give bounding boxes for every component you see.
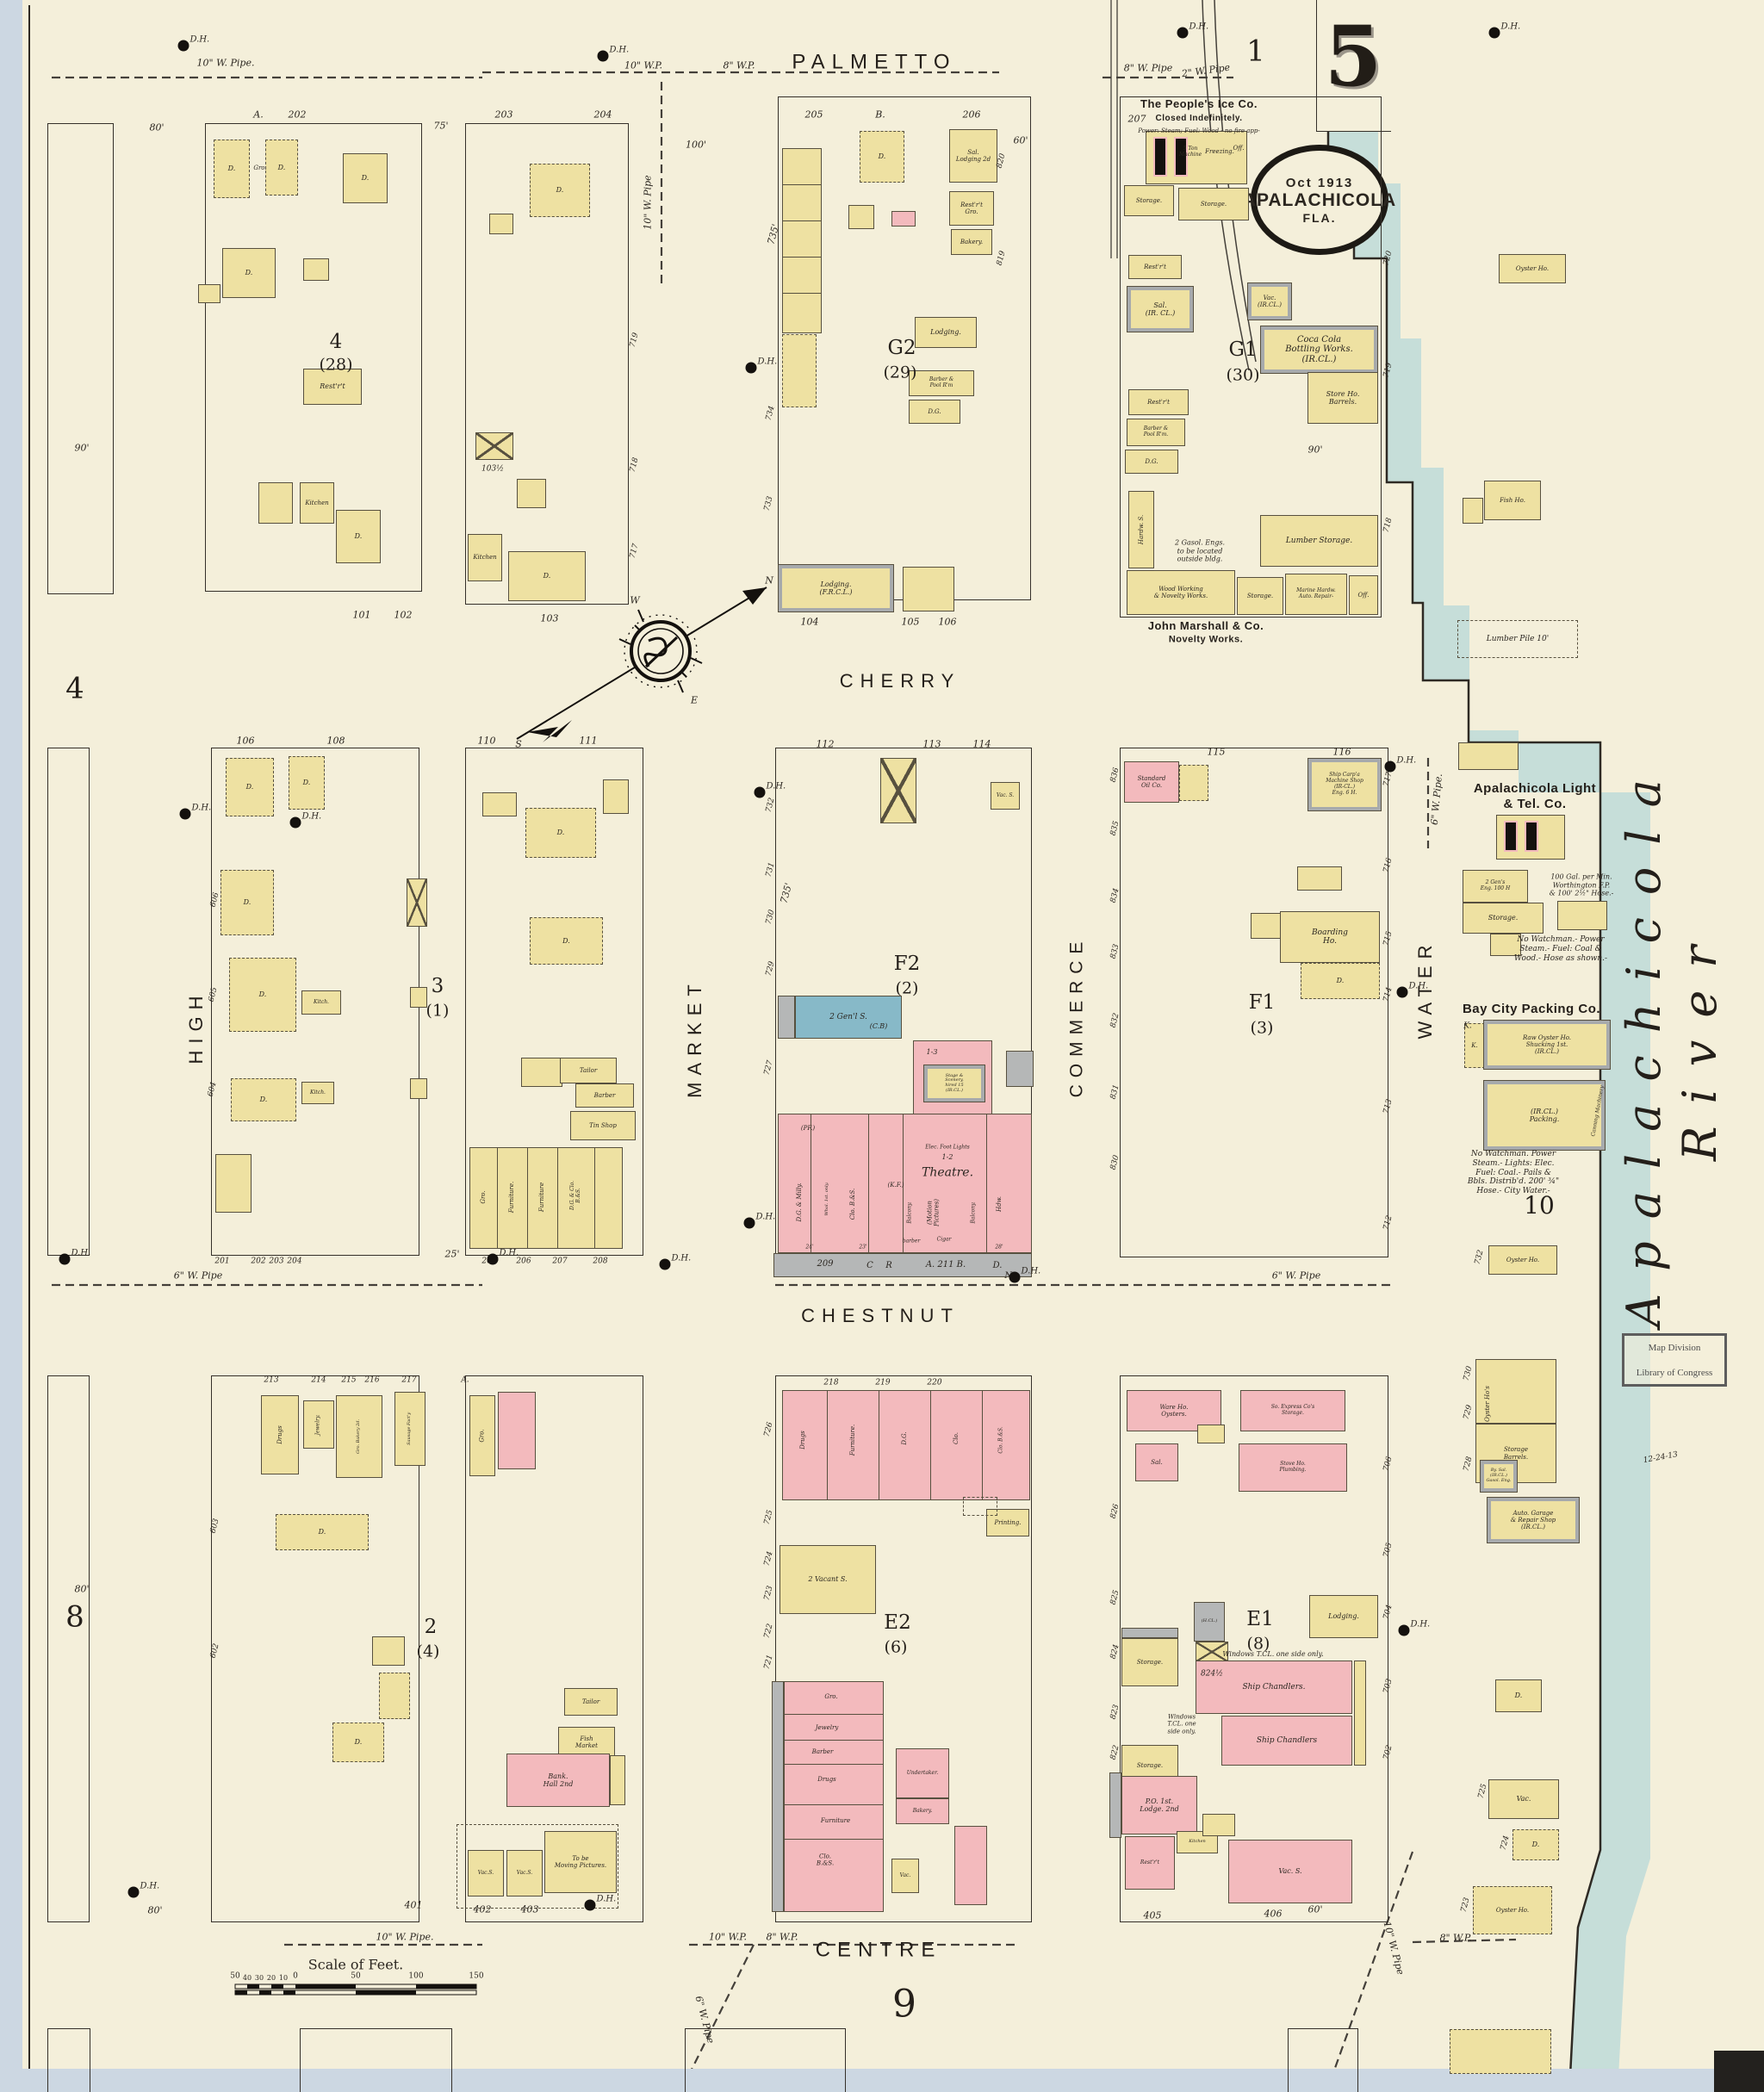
blk-label: E1 (1246, 1608, 1273, 1632)
lot-label: 403 (521, 1903, 539, 1915)
scl-label: 40 (243, 1974, 252, 1983)
fire-hydrant-marker: D.H. (488, 1254, 499, 1265)
building: Standard Oil Co. (1124, 761, 1179, 803)
ttl-label: John Marshall & Co. (1148, 619, 1264, 633)
building-label: Gro. Bakery 2d. (357, 1419, 362, 1454)
building (782, 184, 822, 185)
building-label: D. (319, 1528, 326, 1536)
building (521, 1058, 562, 1087)
building-label: Vac.S. (478, 1871, 494, 1877)
building (410, 987, 427, 1008)
hand-label: Cigar (937, 1236, 952, 1242)
building-label: Oyster Ho. (1496, 1907, 1529, 1914)
dim-label: S (515, 738, 522, 749)
lot-label: D. (993, 1261, 1003, 1271)
city-block-outline (47, 748, 90, 1256)
note-label: 100 Gal. per Min. Worthington F.P. & 100… (1550, 873, 1614, 898)
building: Storage. (1178, 188, 1249, 220)
st-label: COMMERCE (1065, 935, 1087, 1098)
pipe-label: 8" W.P. (1439, 1932, 1471, 1943)
building-label: Wood Working & Novelty Works. (1154, 586, 1208, 599)
hydrant-label: D.H. (140, 1882, 160, 1891)
building-label: Rest'r't (1144, 264, 1166, 270)
sanborn-map-sheet: 5 Oct 1913 APALACHICOLA FLA. Map Divisio… (0, 0, 1764, 2092)
building: Barber (575, 1083, 634, 1108)
building-label: Lumber Storage. (1286, 537, 1352, 545)
building: Ship Chandlers (1221, 1716, 1352, 1766)
building-label: Barber & Pool R'm. (1144, 426, 1169, 438)
building: Wood Working & Novelty Works. (1127, 570, 1235, 615)
blk-label: G1 (1228, 338, 1257, 363)
pipe-label: 8" W.P. (766, 1931, 798, 1942)
building: D. (265, 140, 298, 196)
building-label: By. Sal. (IR.CL.) Gasol. Eng. (1487, 1468, 1512, 1483)
lot-label: 204 (287, 1257, 301, 1267)
lot-label: 204 (594, 109, 612, 120)
building: Gro. (469, 1395, 495, 1476)
building: Vac. (891, 1859, 919, 1893)
fire-hydrant-marker: D.H. (660, 1259, 671, 1270)
building: Raw Oyster Ho. Shucking 1st. (IR.CL.) (1483, 1020, 1611, 1070)
building: D. (220, 870, 274, 935)
blk-label: 2 (425, 1616, 438, 1640)
fire-hydrant-marker: D.H. (744, 1218, 755, 1229)
building: Rest'r't Gro. (949, 191, 994, 226)
hand-label: Theatre. (922, 1166, 973, 1181)
city-block-outline (47, 1375, 90, 1922)
building (954, 1826, 987, 1905)
building-label: Vac. (IR.CL.) (1258, 295, 1282, 308)
dim-label: E (691, 694, 698, 705)
building (1354, 1661, 1366, 1766)
hand-label: Furniture. (849, 1425, 856, 1456)
building: Store Ho. Barrels. (1307, 372, 1378, 424)
hydrant-label: D.H. (1022, 1267, 1041, 1276)
lot-label: 113 (923, 738, 941, 749)
building-label: Store Ho. Barrels. (1326, 390, 1360, 406)
building (497, 1147, 498, 1249)
building (1179, 765, 1208, 801)
note-label: 2 Gasol. Engs. to be located outside bld… (1175, 539, 1225, 564)
building-label: Kitchen (1189, 1840, 1206, 1845)
building: D. (1512, 1829, 1559, 1860)
building: Vac. S. (1228, 1840, 1352, 1903)
building: D. (525, 808, 596, 858)
fire-hydrant-marker: D.H. (1489, 28, 1500, 39)
building-label: Storage. (1137, 1659, 1163, 1666)
note-label: Windows T.CL. one side only. (1222, 1650, 1323, 1659)
lot-label: C (866, 1261, 873, 1271)
building-label: Tailor (582, 1698, 599, 1705)
building: Storage. (1124, 185, 1174, 216)
st-label: CENTRE (816, 1939, 942, 1964)
building: Kitchen (300, 482, 334, 524)
building: Off. (1349, 575, 1378, 615)
building: (IR.CL.) Packing. (1483, 1080, 1606, 1151)
fire-hydrant-marker: D.H. (1397, 987, 1408, 998)
building (782, 257, 822, 258)
building: So. Express Co's Storage. (1240, 1390, 1345, 1431)
ttl-label: Novelty Works. (1169, 634, 1243, 645)
hand-label: Whol. 1st. only. (824, 1183, 829, 1216)
hydrant-label: D.H. (302, 812, 322, 822)
sheet-border-line (28, 5, 30, 2069)
hand-label: (K.F.) (888, 1182, 904, 1189)
lot-label: 220 (927, 1379, 941, 1388)
building (879, 1390, 879, 1500)
building-label: Lodging. (1328, 1612, 1359, 1620)
building-label: Kitchen (305, 500, 328, 506)
building (1297, 866, 1342, 891)
scl-label: 50 (230, 1972, 239, 1982)
hand-label: Furniture (821, 1817, 850, 1824)
building-label: D. (543, 572, 551, 580)
st-label: CHESTNUT (801, 1305, 960, 1327)
lot-label: 207 (1128, 113, 1146, 124)
scl-label: 10 (279, 1974, 288, 1983)
building-label: Fish Market (575, 1735, 598, 1749)
cor-label: 9 (892, 1983, 916, 2028)
building: Marine Hardw. Auto. Repair- (1285, 574, 1347, 615)
building (469, 1147, 623, 1249)
hand-label: Drugs (799, 1431, 806, 1450)
lot-label: 108 (327, 735, 345, 746)
fire-hydrant-marker: D.H. (585, 1900, 596, 1911)
hydrant-label: D.H. (192, 804, 212, 813)
building-label: D. (1515, 1692, 1523, 1699)
building: Vac.S. (506, 1850, 543, 1896)
fire-hydrant-marker: D.H. (746, 363, 757, 374)
lot-label: 110 (478, 735, 496, 746)
hydrant-label: D.H. (610, 46, 630, 55)
building (811, 1114, 811, 1253)
building-label: Storage Barrels. (1504, 1446, 1528, 1460)
building-label: 2 Gen'l S. (829, 1013, 867, 1021)
hand-label: Gro. (824, 1693, 837, 1700)
building (372, 1636, 405, 1666)
building (782, 334, 817, 407)
building-label: Ware Ho. Oysters. (1160, 1404, 1189, 1418)
building: D. (289, 756, 325, 810)
building: Lodging. (F.R.C.L.) (778, 564, 894, 612)
lot-label: 216 (364, 1376, 379, 1386)
building-label: D. (245, 269, 253, 276)
building-label: Boarding Ho. (1312, 928, 1348, 947)
hand-label: Barber (812, 1748, 834, 1755)
pipe-label: 8" W.P. (723, 59, 755, 71)
building: Vac. (1488, 1779, 1559, 1819)
dynamo-icon (1504, 821, 1518, 852)
building-label: Kitch. (310, 1090, 326, 1096)
hand-label: Jewelry (816, 1724, 839, 1731)
hydrant-label: D.H. (756, 1213, 776, 1222)
hand-label: 23' (859, 1244, 866, 1250)
dim-label: 100' (686, 139, 706, 150)
fire-hydrant-marker: D.H. (1177, 28, 1189, 39)
building-label: D. (362, 174, 370, 182)
fire-hydrant-marker: D.H. (1399, 1625, 1410, 1636)
building-label: Tin Shop (589, 1122, 617, 1129)
pipe-label: 10" W. Pipe. (376, 1931, 434, 1942)
building: Stove Ho. Plumbing. (1239, 1443, 1347, 1492)
building-label: Vac. S. (1278, 1867, 1301, 1875)
st-label: PALMETTO (792, 51, 956, 76)
building: Jewelry. (303, 1400, 334, 1449)
building-label: Vac. (1517, 1795, 1531, 1803)
building (784, 1764, 884, 1765)
hand-label: D.G. & Milly. (796, 1183, 803, 1222)
building: D. (1495, 1679, 1542, 1712)
building: D. (276, 1514, 369, 1550)
hydrant-label: D.H. (1409, 982, 1429, 991)
building-label: D. (556, 186, 564, 194)
building-label: D. (355, 1738, 363, 1746)
lot-label: 116 (1333, 746, 1351, 757)
ttl-label: The People's Ice Co. (1140, 97, 1258, 111)
building-label: Hardw. S. (1138, 515, 1145, 545)
building-label: Lodging. (F.R.C.L.) (820, 580, 853, 596)
building (198, 284, 220, 303)
lot-label: 106 (237, 735, 255, 746)
building: (H.CL.) (1194, 1602, 1225, 1642)
building (784, 1804, 884, 1805)
hand-label: 1-3 (927, 1048, 938, 1057)
building: Coca Cola Bottling Works. (IR.CL.) (1260, 326, 1378, 374)
building-label: K. (1471, 1042, 1477, 1049)
building: D. (222, 248, 276, 298)
building: Sal. Lodging 2d (949, 129, 997, 183)
building: Fish Ho. (1484, 481, 1541, 520)
hand-label: 5 Ton Machine (1179, 146, 1202, 158)
building: Storage. (1237, 577, 1283, 615)
pipe-label: 8" W. Pipe (1124, 62, 1172, 73)
lot-label: A. 211 B. (926, 1260, 966, 1270)
compass-rose (517, 587, 767, 742)
hand-label: Drugs (817, 1776, 836, 1783)
building (848, 205, 874, 229)
building: P.O. 1st. Lodge. 2nd (1121, 1776, 1197, 1834)
dynamo-icon (1153, 137, 1167, 177)
dynamo-icon (1525, 821, 1538, 852)
blk-label: (2) (896, 979, 919, 999)
building (379, 1673, 410, 1719)
building (215, 1154, 252, 1213)
hydrant-label: D.H. (597, 1895, 617, 1904)
building: Oyster Ho. (1473, 1886, 1552, 1934)
building: Bank. Hall 2nd (506, 1754, 610, 1807)
lot-label: 201 (214, 1257, 229, 1267)
building-label: Oyster Ho. (1506, 1257, 1539, 1263)
building: Undertaker. (896, 1748, 949, 1798)
building-label: Jewelry. (316, 1414, 322, 1435)
building: Barber & Pool R'm. (1127, 419, 1185, 446)
building-label: Lumber Pile 10' (1487, 635, 1549, 643)
city-block-outline (47, 2028, 90, 2092)
building: D. (860, 131, 904, 183)
note-label: No Watchman. Power Steam.- Lights: Elec.… (1468, 1150, 1559, 1196)
lot-label: 405 (1144, 1909, 1162, 1921)
building-label: Tailor (580, 1067, 597, 1074)
hand-label: D.G. (901, 1431, 908, 1444)
city-block-outline (47, 123, 114, 594)
building-label: D. (246, 783, 254, 791)
hand-label: Hdw. (996, 1196, 1003, 1212)
riv-label: Apalachicola River (1617, 757, 1729, 1327)
lot-label: 218 (823, 1379, 838, 1388)
building-label: Sal. Lodging 2d (956, 149, 991, 163)
lot-label: 106 (939, 616, 957, 627)
lot-label: 208 (593, 1257, 607, 1267)
lot-label: 209 (817, 1259, 833, 1269)
scan-margin-left (0, 0, 22, 2092)
hand-label: (PF.) (801, 1125, 815, 1132)
building: D. (229, 958, 296, 1032)
hand-label: 1-2 (942, 1153, 953, 1162)
hydrant-label: D.H. (1397, 756, 1417, 766)
building-label: Storage. (1201, 201, 1227, 208)
scl-label: 50 (351, 1972, 360, 1982)
building (1197, 1425, 1225, 1443)
blk-label: E2 (884, 1611, 910, 1636)
lot-label: 207 (552, 1257, 567, 1267)
fire-hydrant-marker: D.H. (755, 787, 766, 798)
lot-label: K. (1463, 1022, 1472, 1032)
building-label: Kitch. (314, 1000, 329, 1006)
lot-label: 406 (1264, 1908, 1283, 1919)
lot-label: 114 (973, 738, 991, 749)
blk-label: G2 (887, 337, 916, 361)
cor-label: 4 (65, 672, 84, 707)
building (891, 211, 916, 227)
building (1496, 815, 1565, 860)
building (407, 878, 427, 927)
scl-label: 0 (293, 1972, 298, 1982)
building (1463, 498, 1483, 524)
pipe-label: 6" W. Pipe (1272, 1269, 1320, 1281)
blk-label: (30) (1226, 366, 1259, 386)
building (594, 1147, 595, 1249)
lot-label: 202 (289, 109, 307, 120)
lot-label: 115 (1208, 746, 1226, 757)
building: D. (226, 758, 274, 816)
building (557, 1147, 558, 1249)
building-label: Raw Oyster Ho. Shucking 1st. (IR.CL.) (1523, 1034, 1571, 1055)
building: D. (343, 153, 388, 203)
hydrant-label: D.H. (71, 1249, 91, 1258)
building (903, 567, 954, 611)
building: Vac. (IR.CL.) (1247, 282, 1292, 320)
lot-label: 101 (353, 609, 371, 620)
dim-label: 60' (1013, 134, 1028, 146)
building-label: Rest'r't (1140, 1860, 1159, 1866)
blk-label: 3 (432, 975, 444, 999)
building: Boarding Ho. (1280, 911, 1380, 963)
building: Drugs (261, 1395, 299, 1474)
building-label: (H.CL.) (1202, 1619, 1218, 1624)
building-label: D. (303, 779, 311, 786)
building-label: 2 Vacant S. (808, 1575, 847, 1583)
building (258, 482, 293, 524)
dim-label: 80' (149, 121, 164, 133)
lot-label: 103 (541, 612, 559, 624)
dim-label: W (630, 594, 639, 605)
building (1202, 1814, 1235, 1836)
building-label: Rest'r't (1147, 399, 1170, 406)
building: By. Sal. (IR.CL.) Gasol. Eng. (1480, 1460, 1518, 1493)
building: D. (332, 1723, 384, 1762)
hand-label: Clo. B.&S. (849, 1189, 856, 1220)
building-label: D.G. (1145, 458, 1158, 465)
building (1006, 1051, 1034, 1087)
building: 2 Vacant S. (780, 1545, 876, 1614)
building: Lumber Storage. (1260, 515, 1378, 567)
building-label: To be Moving Pictures. (555, 1855, 606, 1869)
building: Ship Carp'a Machine Shop (IR-CL.) Eng. 6… (1307, 758, 1382, 811)
building (1450, 2029, 1551, 2074)
building-label: D.G. (928, 408, 941, 415)
building-label: Storage. (1247, 593, 1273, 599)
building (868, 1114, 869, 1253)
building: Lodging. (1309, 1595, 1378, 1638)
hydrant-label: D.H. (500, 1249, 519, 1258)
cor-label: 1 (1246, 34, 1265, 70)
blk-label: F1 (1249, 991, 1276, 1015)
building (782, 1390, 1030, 1500)
scl-label: 100 (408, 1972, 423, 1982)
building (475, 432, 513, 460)
cor-label: 8 (65, 1600, 84, 1636)
lot-label: 219 (875, 1379, 890, 1388)
building-label: D. (259, 990, 267, 998)
building (784, 1740, 884, 1741)
building-label: Kitchen (473, 554, 496, 561)
hydrant-label: D.H. (1501, 22, 1521, 32)
fire-hydrant-marker: D.H. (178, 40, 189, 52)
building (489, 214, 513, 234)
note-label: No Watchman.- Power Steam.- Fuel: Coal &… (1514, 935, 1607, 963)
building: Rest'r't (1128, 389, 1189, 415)
building: Gro. Bakery 2d. (336, 1395, 382, 1478)
building-label: So. Express Co's Storage. (1271, 1405, 1314, 1417)
fire-hydrant-marker: D.H. (598, 51, 609, 62)
city-block-outline (300, 2028, 452, 2092)
fire-hydrant-marker: D.H. (180, 809, 191, 820)
building (498, 1392, 536, 1469)
building-label: Ship Carp'a Machine Shop (IR-CL.) Eng. 6… (1326, 773, 1363, 797)
lot-label: 112 (817, 738, 835, 749)
blk-label: (6) (885, 1638, 908, 1658)
lot-label: 206 (963, 109, 981, 120)
dim-label: 90' (74, 442, 89, 453)
building: Stage & Scenery, hired 15 (IR.CL.) (923, 1065, 985, 1102)
building: Rest'r't (1125, 1836, 1175, 1890)
building (778, 1114, 1032, 1253)
building (603, 779, 629, 814)
building: Ship Chandlers. (1196, 1661, 1352, 1714)
scl-label: 30 (255, 1974, 264, 1983)
building: D. (336, 510, 381, 563)
dim-label: N (765, 574, 773, 586)
blk-label: (29) (883, 363, 916, 383)
building-label: D. (244, 898, 252, 906)
building (610, 1755, 625, 1805)
lot-label: A. (253, 109, 263, 120)
lot-label: 214 (311, 1376, 326, 1386)
lot-label: 203 (269, 1257, 283, 1267)
building (963, 1497, 997, 1516)
hydrant-label: D.H. (758, 357, 778, 367)
building (784, 1714, 884, 1715)
